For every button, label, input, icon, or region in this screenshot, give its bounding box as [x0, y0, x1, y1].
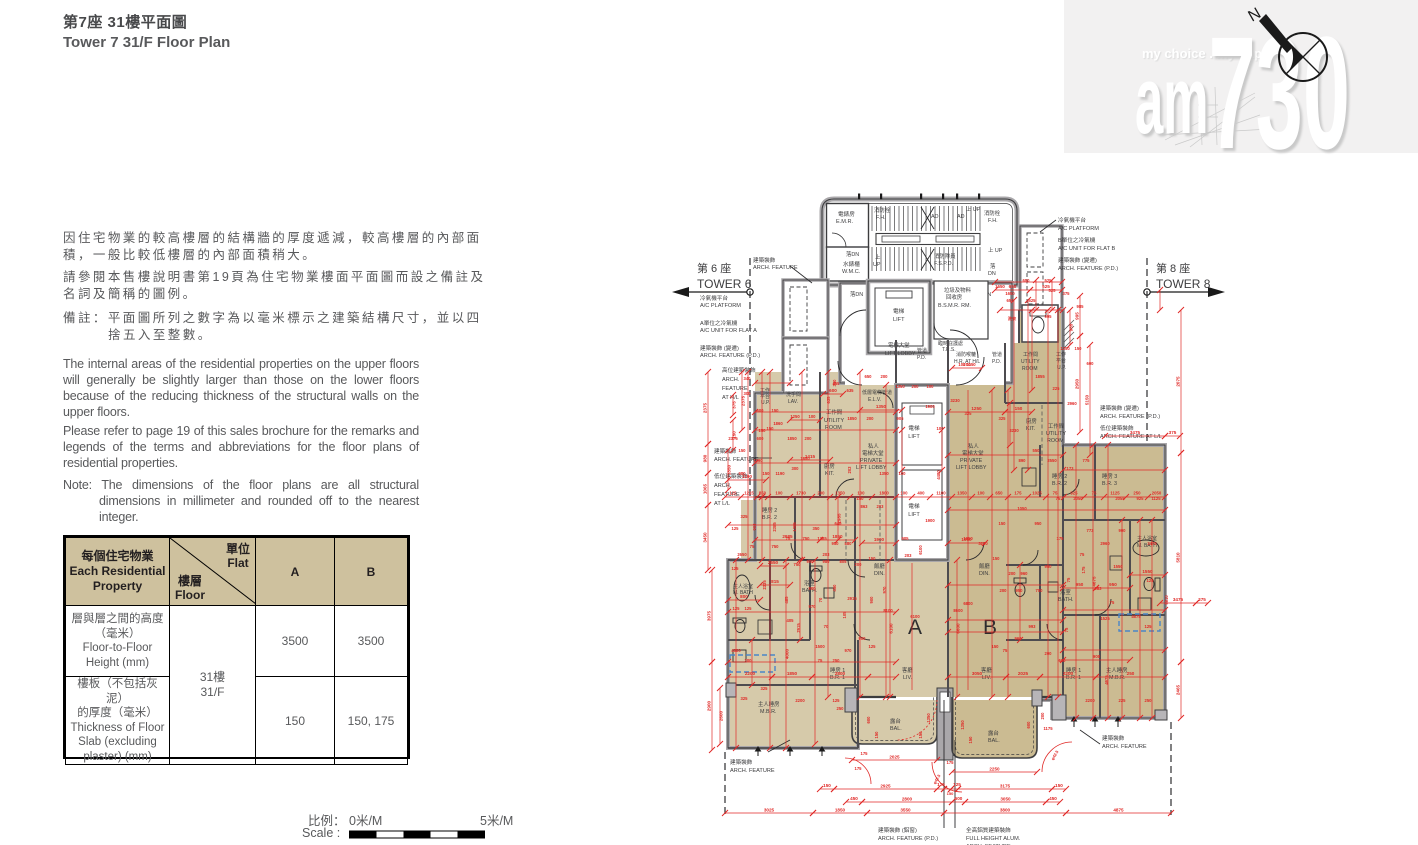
svg-text:1350: 1350 [895, 384, 905, 389]
svg-text:ARCH. FEATURE (P.D.): ARCH. FEATURE (P.D.) [1100, 414, 1160, 420]
svg-text:250: 250 [1127, 671, 1135, 676]
svg-text:150: 150 [763, 471, 771, 476]
svg-text:3025: 3025 [764, 808, 775, 813]
svg-text:3050: 3050 [1000, 797, 1011, 802]
svg-text:2375: 2375 [741, 395, 746, 406]
svg-text:650: 650 [1009, 284, 1017, 289]
svg-text:飯廳: 飯廳 [979, 562, 990, 570]
svg-text:管道: 管道 [917, 347, 927, 354]
svg-text:1350: 1350 [879, 471, 889, 476]
svg-text:3450: 3450 [703, 532, 708, 543]
svg-text:1900: 1900 [874, 537, 885, 542]
svg-text:TOWER 8: TOWER 8 [1156, 277, 1211, 291]
svg-text:200: 200 [867, 416, 875, 421]
svg-text:450: 450 [832, 584, 837, 592]
svg-text:75: 75 [1092, 491, 1097, 496]
svg-text:600: 600 [866, 716, 871, 724]
svg-text:970: 970 [845, 648, 853, 653]
svg-text:150: 150 [1015, 406, 1023, 411]
svg-text:ARCH. FEATURE: ARCH. FEATURE [730, 768, 775, 774]
svg-text:第 6 座: 第 6 座 [697, 261, 731, 275]
svg-text:2050: 2050 [1152, 491, 1162, 496]
svg-text:900: 900 [809, 586, 817, 591]
svg-text:150: 150 [874, 731, 879, 739]
svg-text:ARCH. FEATURE (P.D.): ARCH. FEATURE (P.D.) [878, 836, 938, 842]
svg-text:1525: 1525 [1100, 616, 1110, 621]
svg-text:2200: 2200 [1063, 671, 1074, 676]
svg-text:LIFT LOBBY: LIFT LOBBY [956, 465, 987, 471]
svg-text:1650: 1650 [1005, 291, 1015, 296]
svg-text:1125: 1125 [1110, 491, 1120, 496]
svg-text:1065: 1065 [703, 483, 708, 494]
svg-text:3475: 3475 [1130, 430, 1141, 435]
svg-text:600: 600 [829, 388, 837, 393]
svg-text:300: 300 [792, 466, 800, 471]
svg-text:3550: 3550 [900, 808, 911, 813]
svg-text:175: 175 [1014, 491, 1022, 496]
svg-text:100: 100 [775, 491, 783, 496]
svg-text:冷氣機平台: 冷氣機平台 [700, 294, 728, 302]
svg-text:1100: 1100 [936, 491, 946, 496]
svg-text:150: 150 [759, 428, 767, 433]
svg-text:980: 980 [703, 454, 708, 462]
svg-text:125: 125 [1147, 578, 1155, 583]
svg-text:175: 175 [861, 751, 869, 756]
svg-text:E.M.R.: E.M.R. [836, 219, 854, 225]
svg-text:ARCH. FEATURE (P.D.): ARCH. FEATURE (P.D.) [1058, 266, 1118, 272]
svg-text:1650: 1650 [995, 284, 1005, 289]
svg-text:KIT.: KIT. [1026, 426, 1035, 432]
svg-text:電梯: 電梯 [908, 424, 920, 432]
svg-text:640: 640 [835, 521, 843, 526]
svg-text:2800: 2800 [835, 671, 846, 676]
svg-text:375: 375 [1169, 430, 1177, 435]
svg-text:2800: 2800 [902, 797, 913, 802]
svg-text:U.P.: U.P. [761, 400, 770, 406]
svg-text:70: 70 [824, 624, 829, 629]
svg-text:950: 950 [1109, 582, 1117, 587]
svg-text:建築裝飾: 建築裝飾 [1102, 734, 1125, 742]
svg-text:1730: 1730 [796, 491, 806, 496]
svg-text:450: 450 [1049, 796, 1057, 801]
svg-text:455: 455 [833, 381, 841, 386]
svg-text:2375: 2375 [703, 402, 708, 413]
svg-text:F.H.: F.H. [988, 218, 998, 224]
svg-text:600: 600 [1059, 658, 1067, 663]
svg-text:落: 落 [990, 262, 996, 270]
svg-text:970: 970 [809, 604, 817, 609]
svg-text:LIFT LOBBY: LIFT LOBBY [885, 351, 916, 357]
svg-text:225: 225 [1119, 698, 1127, 703]
svg-text:2915: 2915 [796, 623, 801, 633]
svg-text:1250: 1250 [790, 414, 800, 419]
svg-text:消防栓: 消防栓 [874, 206, 891, 214]
svg-text:980: 980 [823, 559, 831, 564]
svg-text:863: 863 [861, 504, 869, 509]
svg-text:工作: 工作 [1056, 351, 1066, 358]
svg-text:980: 980 [739, 471, 747, 476]
svg-text:925: 925 [1070, 491, 1078, 496]
svg-text:960: 960 [1015, 636, 1023, 641]
svg-text:E.L.V.: E.L.V. [868, 397, 881, 403]
svg-text:工作: 工作 [760, 387, 770, 394]
svg-text:1250: 1250 [971, 406, 982, 411]
svg-text:150: 150 [823, 783, 831, 788]
svg-text:廚房: 廚房 [1026, 417, 1037, 425]
svg-text:960: 960 [1021, 571, 1029, 576]
svg-text:3050: 3050 [972, 671, 983, 676]
svg-text:525: 525 [1029, 298, 1037, 303]
svg-text:2250: 2250 [989, 767, 1000, 772]
svg-text:AD: AD [957, 214, 965, 220]
svg-text:TOWER 6: TOWER 6 [697, 277, 752, 291]
svg-text:1900: 1900 [925, 518, 935, 523]
svg-text:4000: 4000 [785, 648, 790, 659]
svg-text:AT L/L: AT L/L [714, 501, 730, 507]
svg-text:1215: 1215 [744, 491, 754, 496]
svg-text:洗手間: 洗手間 [786, 391, 801, 398]
svg-text:100: 100 [900, 491, 908, 496]
svg-text:635: 635 [847, 388, 855, 393]
svg-text:75: 75 [786, 536, 791, 541]
svg-text:900: 900 [869, 596, 874, 604]
svg-text:650: 650 [1007, 298, 1015, 303]
svg-text:露台: 露台 [988, 729, 999, 737]
svg-text:200: 200 [855, 562, 863, 567]
svg-text:臨時庇護處: 臨時庇護處 [938, 340, 963, 347]
svg-text:200: 200 [805, 436, 813, 441]
svg-text:2960: 2960 [1100, 541, 1110, 546]
svg-text:2055: 2055 [1115, 496, 1125, 501]
svg-text:300: 300 [744, 391, 752, 396]
svg-text:ARCH. FEATURE: ARCH. FEATURE [753, 265, 798, 271]
svg-text:1190: 1190 [775, 471, 785, 476]
svg-text:管道: 管道 [992, 351, 1002, 358]
svg-text:2200: 2200 [795, 698, 805, 703]
svg-text:175: 175 [1081, 566, 1086, 574]
svg-text:建築裝飾 (變遷): 建築裝飾 (變遷) [1100, 404, 1139, 412]
svg-text:ROOM: ROOM [1047, 438, 1064, 444]
svg-text:250: 250 [837, 706, 845, 711]
svg-text:DIN.: DIN. [979, 571, 990, 577]
svg-text:2375: 2375 [728, 436, 738, 441]
svg-text:75: 75 [750, 544, 755, 549]
svg-text:睡房 2: 睡房 2 [1052, 472, 1067, 480]
svg-text:3475: 3475 [1173, 597, 1184, 602]
svg-text:325: 325 [761, 686, 769, 691]
svg-text:2335: 2335 [762, 580, 767, 590]
svg-text:F.S.P.D.: F.S.P.D. [934, 261, 953, 267]
svg-text:325: 325 [741, 514, 749, 519]
svg-text:A/C PLATFORM: A/C PLATFORM [1058, 226, 1099, 232]
svg-text:250: 250 [833, 658, 841, 663]
svg-text:950: 950 [1045, 564, 1053, 569]
svg-text:325: 325 [999, 416, 1007, 421]
svg-text:B: B [983, 616, 997, 639]
svg-text:建築裝飾: 建築裝飾 [714, 447, 737, 455]
svg-text:UP: UP [873, 262, 881, 268]
svg-text:3230: 3230 [950, 398, 960, 403]
svg-text:100: 100 [899, 471, 907, 476]
svg-text:平台: 平台 [1056, 357, 1066, 364]
svg-text:A單位之冷氣機: A單位之冷氣機 [700, 319, 738, 327]
svg-text:垃圾及物料: 垃圾及物料 [944, 286, 972, 294]
svg-text:600: 600 [955, 796, 963, 801]
svg-text:BAL.: BAL. [890, 726, 902, 732]
svg-text:890: 890 [1019, 458, 1027, 463]
svg-text:LIV.: LIV. [982, 675, 991, 681]
svg-text:203: 203 [905, 553, 913, 558]
svg-text:6800: 6800 [963, 601, 973, 606]
svg-text:2075: 2075 [1176, 376, 1181, 387]
svg-text:1850: 1850 [835, 808, 846, 813]
svg-text:4675: 4675 [1131, 614, 1141, 619]
svg-text:建築裝飾 (變遷): 建築裝飾 (變遷) [1058, 256, 1097, 264]
svg-text:650: 650 [865, 374, 873, 379]
svg-text:903: 903 [752, 523, 757, 531]
svg-text:125: 125 [833, 698, 841, 703]
svg-text:100 1150: 100 1150 [958, 362, 976, 367]
svg-text:4000: 4000 [731, 648, 741, 653]
svg-text:消防栓: 消防栓 [984, 209, 1001, 217]
svg-text:洗衣: 洗衣 [1008, 315, 1017, 322]
svg-text:800: 800 [740, 594, 748, 599]
svg-text:375: 375 [1198, 597, 1206, 602]
svg-text:私人: 私人 [968, 442, 979, 450]
svg-text:1550: 1550 [1142, 569, 1153, 574]
svg-text:2915: 2915 [847, 596, 857, 601]
svg-text:2200: 2200 [745, 671, 756, 676]
svg-text:1125: 1125 [1151, 496, 1161, 501]
svg-text:175: 175 [947, 760, 955, 765]
svg-text:A/C UNIT FOR FLAT A: A/C UNIT FOR FLAT A [700, 328, 757, 334]
svg-text:173: 173 [1067, 466, 1075, 471]
svg-text:W.M.C.: W.M.C. [842, 269, 861, 275]
svg-text:150: 150 [918, 731, 923, 739]
svg-text:第 8 座: 第 8 座 [1156, 261, 1190, 275]
svg-text:電梯大堂: 電梯大堂 [888, 341, 910, 349]
svg-text:175: 175 [855, 766, 863, 771]
svg-text:電梯: 電梯 [893, 307, 905, 315]
svg-text:電梯大堂: 電梯大堂 [962, 449, 984, 457]
svg-text:75: 75 [1053, 491, 1058, 496]
svg-text:1350: 1350 [876, 404, 887, 409]
svg-text:150: 150 [869, 556, 877, 561]
svg-text:3230: 3230 [1009, 428, 1019, 433]
svg-text:1860: 1860 [773, 421, 783, 426]
svg-text:KIT.: KIT. [825, 471, 834, 477]
svg-text:BAL.: BAL. [988, 738, 1000, 744]
svg-text:950: 950 [1016, 588, 1024, 593]
svg-text:995: 995 [1045, 314, 1053, 319]
svg-text:2650: 2650 [768, 560, 779, 565]
svg-text:1550: 1550 [1113, 564, 1123, 569]
svg-text:P.D.: P.D. [992, 359, 1001, 365]
svg-text:550: 550 [1033, 448, 1041, 453]
svg-text:203: 203 [823, 552, 831, 557]
svg-text:LIFT: LIFT [908, 512, 920, 518]
svg-text:2050: 2050 [1073, 496, 1083, 501]
svg-text:400: 400 [917, 491, 925, 496]
svg-text:150: 150 [739, 448, 747, 453]
svg-text:AD: AD [931, 214, 939, 220]
svg-text:3800: 3800 [1000, 808, 1011, 813]
svg-text:回收房: 回收房 [946, 293, 962, 301]
svg-text:電錶房: 電錶房 [838, 210, 855, 218]
svg-text:150: 150 [968, 736, 973, 744]
svg-text:150: 150 [1055, 783, 1063, 788]
svg-text:775: 775 [1083, 458, 1091, 463]
svg-text:建築裝飾 (鋁窗): 建築裝飾 (鋁窗) [878, 826, 917, 834]
svg-text:BATH.: BATH. [1058, 597, 1073, 603]
svg-text:3975: 3975 [707, 610, 712, 621]
svg-text:B.S.M.R. RM.: B.S.M.R. RM. [938, 303, 971, 309]
svg-text:UTILITY: UTILITY [1046, 431, 1066, 437]
svg-text:1800: 1800 [879, 491, 889, 496]
svg-text:DIN.: DIN. [874, 571, 885, 577]
svg-text:工作間: 工作間 [1023, 351, 1038, 358]
svg-text:工作間: 工作間 [1048, 422, 1064, 430]
svg-text:773: 773 [1087, 528, 1095, 533]
svg-text:150: 150 [992, 644, 1000, 649]
svg-text:4480: 4480 [936, 470, 941, 480]
svg-text:325: 325 [741, 696, 749, 701]
svg-text:露台: 露台 [890, 717, 901, 725]
svg-text:2025: 2025 [889, 755, 900, 760]
svg-text:983: 983 [1095, 586, 1103, 591]
svg-text:125: 125 [732, 566, 740, 571]
svg-text:200: 200 [817, 491, 825, 496]
svg-text:1250: 1250 [1060, 346, 1070, 351]
svg-text:125: 125 [745, 606, 753, 611]
svg-text:1350: 1350 [926, 713, 931, 723]
svg-text:375: 375 [732, 401, 737, 409]
svg-text:LIFT: LIFT [908, 434, 920, 440]
svg-text:1850: 1850 [787, 436, 797, 441]
svg-text:2925: 2925 [880, 784, 891, 789]
svg-text:700: 700 [1036, 588, 1044, 593]
svg-text:200: 200 [881, 374, 889, 379]
svg-text:200: 200 [1000, 588, 1008, 593]
svg-text:1900: 1900 [925, 404, 935, 409]
svg-text:203: 203 [847, 466, 852, 474]
svg-text:5150: 5150 [1085, 394, 1090, 405]
svg-text:900: 900 [859, 636, 867, 641]
svg-text:925: 925 [1137, 496, 1145, 501]
svg-text:125: 125 [733, 606, 741, 611]
svg-text:M.B.R.: M.B.R. [1109, 675, 1125, 681]
svg-text:飯廳: 飯廳 [874, 562, 885, 570]
svg-text:985: 985 [1069, 323, 1074, 331]
svg-text:LIFT: LIFT [893, 317, 905, 323]
svg-text:2385: 2385 [772, 522, 777, 532]
svg-text:100: 100 [937, 426, 945, 431]
svg-text:ARCH. FEATURE (P.D.): ARCH. FEATURE (P.D.) [700, 353, 760, 359]
svg-text:650: 650 [1023, 278, 1031, 283]
svg-text:200: 200 [1045, 651, 1053, 656]
svg-text:150: 150 [993, 556, 1001, 561]
svg-text:B.R. 2: B.R. 2 [1052, 481, 1067, 487]
svg-text:DN: DN [988, 271, 996, 277]
svg-text:650: 650 [995, 491, 1003, 496]
svg-text:8600: 8600 [953, 608, 963, 613]
svg-text:150: 150 [999, 521, 1007, 526]
svg-text:5810: 5810 [1164, 595, 1169, 605]
svg-text:2465: 2465 [1176, 684, 1181, 695]
svg-text:ARCH.: ARCH. [722, 377, 740, 383]
svg-text:B.R. 2: B.R. 2 [762, 515, 777, 521]
svg-text:985: 985 [1077, 304, 1085, 309]
svg-text:平台: 平台 [760, 393, 770, 400]
svg-text:525: 525 [1045, 278, 1053, 283]
svg-text:電梯: 電梯 [908, 502, 920, 510]
svg-text:750: 750 [803, 536, 811, 541]
svg-text:125: 125 [732, 526, 740, 531]
svg-text:100: 100 [809, 414, 817, 419]
svg-text:LAV.: LAV. [788, 399, 798, 405]
svg-text:客廳: 客廳 [981, 666, 992, 674]
svg-text:PRIVATE: PRIVATE [960, 458, 983, 464]
svg-text:主人睡房: 主人睡房 [758, 700, 780, 708]
svg-text:340: 340 [744, 376, 752, 381]
svg-text:建築裝飾: 建築裝飾 [753, 256, 776, 264]
svg-text:750: 750 [794, 562, 802, 567]
svg-text:600: 600 [1026, 721, 1031, 729]
svg-text:950: 950 [1035, 521, 1043, 526]
svg-text:私人: 私人 [868, 442, 879, 450]
svg-text:150: 150 [1075, 346, 1083, 351]
svg-text:225: 225 [1053, 386, 1061, 391]
svg-text:75: 75 [1066, 577, 1071, 582]
svg-text:ROOM: ROOM [1022, 366, 1038, 372]
svg-text:100: 100 [927, 384, 935, 389]
svg-text:睡房 3: 睡房 3 [1102, 472, 1117, 480]
svg-text:2200: 2200 [1085, 698, 1095, 703]
svg-text:3230: 3230 [978, 541, 988, 546]
svg-text:UTILITY: UTILITY [1021, 359, 1040, 365]
svg-text:4875: 4875 [1113, 808, 1124, 813]
svg-text:1850: 1850 [787, 671, 798, 676]
svg-text:350: 350 [813, 526, 821, 531]
svg-text:上 UP: 上 UP [966, 205, 981, 213]
svg-text:1350: 1350 [957, 491, 967, 496]
svg-text:850: 850 [759, 491, 767, 496]
svg-text:2025: 2025 [1018, 671, 1029, 676]
svg-text:水錶櫃: 水錶櫃 [843, 260, 860, 268]
svg-text:1500: 1500 [815, 644, 825, 649]
svg-text:消防隊員: 消防隊員 [934, 252, 956, 260]
svg-text:2950: 2950 [1075, 378, 1080, 389]
svg-text:1850: 1850 [847, 416, 857, 421]
svg-text:750: 750 [772, 544, 780, 549]
svg-text:1190: 1190 [753, 458, 763, 463]
svg-text:375: 375 [1063, 291, 1071, 296]
svg-text:2900: 2900 [707, 700, 712, 711]
svg-text:1175: 1175 [1043, 726, 1053, 731]
svg-text:M.B.R.: M.B.R. [760, 709, 776, 715]
svg-text:200: 200 [1040, 712, 1045, 720]
svg-text:A: A [908, 616, 922, 639]
svg-text:900: 900 [1119, 528, 1127, 533]
svg-text:FULL HEIGHT ALUM.: FULL HEIGHT ALUM. [966, 836, 1021, 842]
svg-text:3175: 3175 [1000, 784, 1011, 789]
svg-text:2650: 2650 [737, 552, 747, 557]
svg-text:905: 905 [902, 536, 910, 541]
svg-text:995: 995 [1075, 312, 1080, 320]
svg-text:1850: 1850 [727, 464, 732, 475]
svg-text:高位建築裝飾: 高位建築裝飾 [722, 366, 756, 374]
svg-text:P.D.: P.D. [917, 355, 926, 361]
